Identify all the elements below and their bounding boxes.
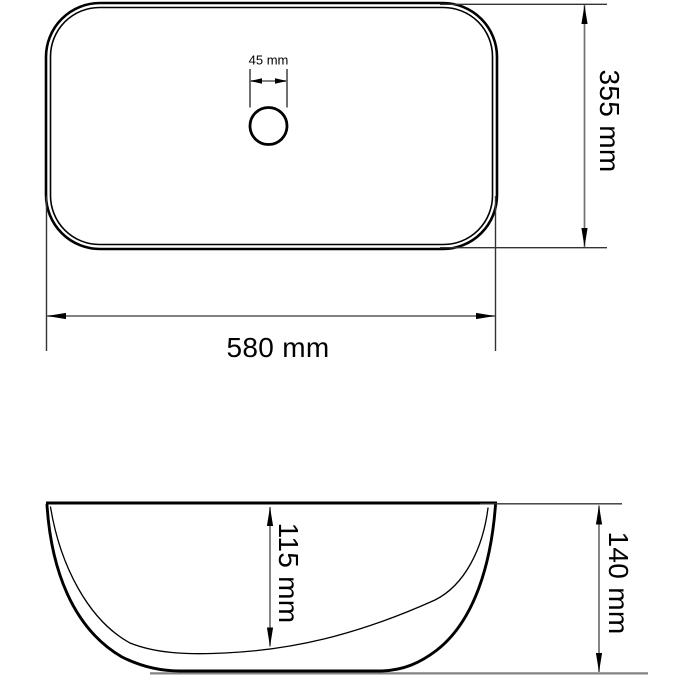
sink-outer-profile [47, 505, 496, 671]
drain-dimension: 45 mm [249, 53, 289, 108]
depth-dimension-label: 355 mm [594, 70, 625, 173]
width-dimension: 580 mm [47, 196, 496, 363]
side-view: 115 mm 140 mm [46, 503, 648, 673]
width-dimension-label: 580 mm [227, 332, 330, 363]
sink-outer-rim [46, 3, 497, 249]
drain-hole [250, 108, 287, 145]
bowl-depth-dimension: 115 mm [270, 507, 304, 647]
drain-dimension-label: 45 mm [249, 53, 289, 68]
sink-technical-drawing-canvas: 45 mm 580 mm 355 mm [0, 0, 680, 680]
height-dimension-label: 140 mm [603, 532, 634, 635]
bowl-depth-dimension-label: 115 mm [273, 523, 304, 624]
depth-dimension: 355 mm [440, 4, 625, 247]
top-view: 45 mm 580 mm 355 mm [46, 3, 625, 363]
sink-inner-rim [51, 8, 493, 245]
height-dimension: 140 mm [480, 504, 634, 672]
sink-dimension-drawing: 45 mm 580 mm 355 mm [0, 0, 680, 680]
